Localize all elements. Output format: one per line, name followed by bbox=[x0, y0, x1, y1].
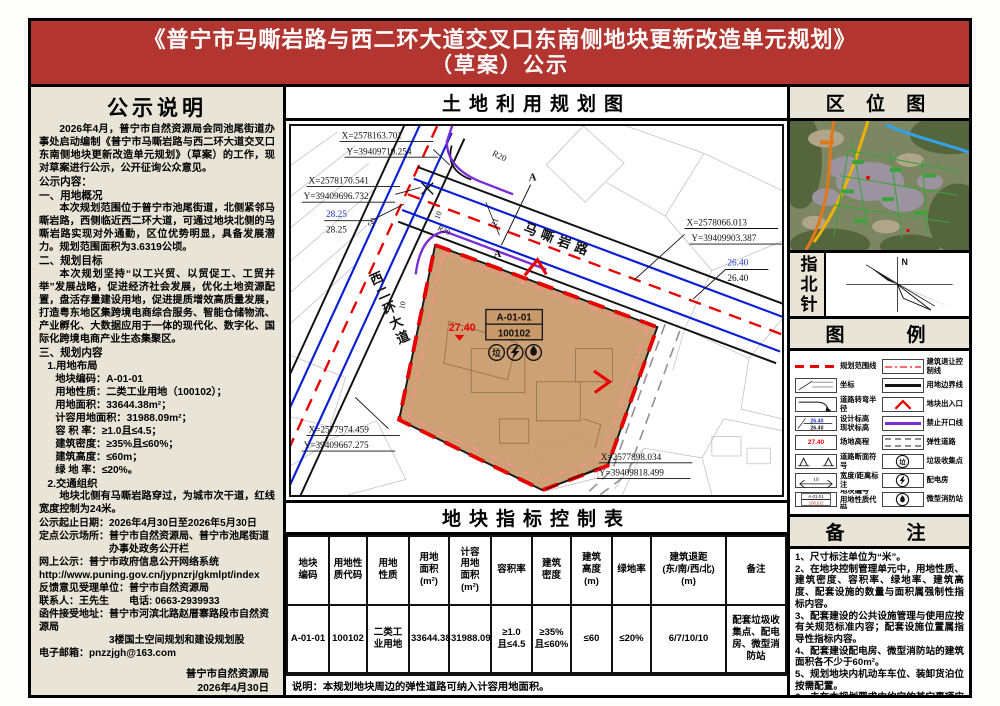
plot-entrance-icon bbox=[882, 397, 924, 412]
footer-line: 公示起止日期：2026年4月30日至2026年5月30日 bbox=[39, 517, 275, 530]
exist-elev: 26.40 bbox=[727, 274, 748, 284]
notice-s2-text: 本次规划坚持“以工兴贸、以贸促工、工贸并举”发展战略，促进经济社会发展，优化土地… bbox=[39, 269, 275, 347]
legend-item: 配电房 bbox=[882, 471, 967, 490]
legend-item: 垃 垃圾收集点 bbox=[882, 452, 967, 471]
svg-text:垃: 垃 bbox=[899, 457, 906, 466]
signature-date: 2026年4月30日 bbox=[39, 682, 269, 695]
table-row: A-01-01 100102 二类工 业用地 33644.38 31988.09… bbox=[287, 605, 786, 674]
notice-content-label: 公示内容： bbox=[39, 176, 275, 190]
remark-item: 2、在地块控制管理单元中，用地性质、建筑密度、容积率、绿地率、建筑高度、配套设施… bbox=[795, 564, 964, 611]
svg-text:10: 10 bbox=[813, 477, 819, 483]
remark-item: 4、配套建设配电房、微型消防站的建筑面积各不少于60m²。 bbox=[795, 646, 964, 669]
setback-label: 10 bbox=[433, 210, 444, 221]
remark-item: 6、未在本规划要求中约定的其它事项应遵从国家、省、市有关政策和标准。 bbox=[795, 692, 964, 695]
legend-item: 10 宽度/距离标注 bbox=[795, 471, 880, 490]
coord-label: Y=39409903.387 bbox=[691, 234, 756, 244]
col-header: 计容 用地 面积 (m²) bbox=[449, 536, 491, 605]
page-header: 《普宁市马嘶岩路与西二环大道交叉口东南侧地块更新改造单元规划》 （草案）公示 bbox=[31, 21, 969, 87]
col-header: 用地 面积 (m²) bbox=[409, 536, 449, 605]
notice-s3-title: 三、规划内容 bbox=[39, 347, 275, 361]
map-title: 土地利用规划图 bbox=[286, 87, 787, 121]
notice-title: 公示说明 bbox=[39, 92, 275, 122]
notice-s3-2-title: 2.交通组织 bbox=[39, 478, 275, 492]
coord-label: X=2577898.034 bbox=[601, 453, 662, 463]
coord-label: Y=39409818.499 bbox=[599, 468, 664, 478]
notice-sheet: 《普宁市马嘶岩路与西二环大道交叉口东南侧地块更新改造单元规划》 （草案）公示 公… bbox=[28, 18, 972, 698]
legend-item: 规划范围线 bbox=[795, 357, 880, 376]
notice-s2-title: 二、规划目标 bbox=[39, 255, 275, 269]
cell-height: ≤60 bbox=[571, 605, 612, 674]
svg-text:100102: 100102 bbox=[809, 501, 824, 506]
table-header-row: 地块 编码 用地性 质代码 用地 性质 用地 面积 (m²) 计容 用地 面积 … bbox=[287, 536, 786, 605]
legend-item: 用地边界线 bbox=[882, 376, 967, 395]
compass-section: 指北针 N bbox=[790, 253, 969, 319]
location-map-title: 区 位 图 bbox=[790, 87, 969, 121]
cell-area: 33644.38 bbox=[409, 605, 449, 674]
indicator-table: 地块 编码 用地性 质代码 用地 性质 用地 面积 (m²) 计容 用地 面积 … bbox=[286, 535, 787, 674]
coord-label: X=2577974.459 bbox=[309, 426, 370, 436]
col-header: 建筑退距 (东/南/西/北) (m) bbox=[651, 536, 726, 605]
col-header: 备注 bbox=[726, 536, 786, 605]
col-header: 用地性 质代码 bbox=[329, 536, 367, 605]
cell-density: ≥35% 且≤60% bbox=[532, 605, 571, 674]
radius-label: R20 bbox=[436, 223, 452, 237]
coord-label: Y=39409710.254 bbox=[347, 147, 412, 157]
coord-label: Y=39409696.732 bbox=[304, 192, 369, 202]
marker-dot bbox=[906, 229, 909, 232]
signature-org: 普宁市自然资源局 bbox=[39, 668, 269, 682]
notice-s3-1-title: 1.用地布局 bbox=[39, 360, 275, 374]
legend-item: 禁止开口线 bbox=[882, 414, 967, 433]
footer-url: http://www.puning.gov.cn/jypnzrj/gkmlpt/… bbox=[39, 569, 275, 582]
legend-title: 图 例 bbox=[790, 319, 969, 351]
planning-range-line-icon bbox=[795, 359, 837, 374]
trash-point-legend-icon: 垃 bbox=[882, 454, 924, 469]
signature-block: 普宁市自然资源局 2026年4月30日 bbox=[39, 668, 275, 695]
notice-footer: 公示起止日期：2026年4月30日至2026年5月30日 定点公示场所：普宁市自… bbox=[39, 517, 275, 695]
site-elevation-icon: 27.40 bbox=[795, 435, 837, 450]
map-area: A-01-01 100102 垃 27.40 bbox=[286, 121, 787, 500]
landuse-map-section: 土地利用规划图 bbox=[286, 87, 787, 503]
footer-line: 定点公示场所：普宁市自然资源局、普宁市池尾街道 办事处政务公开栏 bbox=[39, 530, 275, 556]
landuse-map-drawing: A-01-01 100102 垃 27.40 bbox=[291, 126, 782, 495]
indicator-table-section: 地块指标控制表 地块 编码 用地性 质代码 用地 性质 用地 面积 (m²) bbox=[286, 503, 787, 695]
legend-item: 26.40 26.40 设计标高 现状标高 bbox=[795, 414, 880, 433]
elevation-icon: 26.40 26.40 bbox=[795, 416, 837, 431]
cell-use-code: 100102 bbox=[329, 605, 367, 674]
cell-setback: 6/7/10/10 bbox=[651, 605, 726, 674]
power-room-legend-icon bbox=[882, 473, 924, 488]
svg-text:A-01-01: A-01-01 bbox=[808, 494, 824, 499]
remark-item: 5、规划地块内机动车车位、装卸货泊位按需配置。 bbox=[795, 669, 964, 692]
plot-line: 建筑密度：≥35%且≤60%； bbox=[39, 439, 275, 452]
legend-item: 道路断面符号 bbox=[795, 452, 880, 471]
setback-label: 10 bbox=[397, 300, 407, 310]
section-mark: A bbox=[529, 172, 537, 184]
cell-green: ≤20% bbox=[612, 605, 651, 674]
page-title-line2: （草案）公示 bbox=[431, 53, 569, 79]
trash-glyph: 垃 bbox=[492, 347, 501, 358]
plot-line: 计容用地面积：31988.09m²； bbox=[39, 413, 275, 426]
parcel-use-label: 100102 bbox=[498, 328, 531, 339]
cell-plot-code: A-01-01 bbox=[287, 605, 329, 674]
radius-label: R20 bbox=[491, 148, 509, 164]
page-title-line1: 《普宁市马嘶岩路与西二环大道交叉口东南侧地块更新改造单元规划》 bbox=[143, 26, 856, 54]
col-header: 建筑 密度 bbox=[532, 536, 571, 605]
legend: 规划范围线 建筑退让控制线 坐标 用地边界线 bbox=[790, 351, 969, 517]
coordinate-icon bbox=[795, 378, 837, 393]
plot-line: 用地面积：33644.38m²； bbox=[39, 400, 275, 413]
col-header: 用地 性质 bbox=[367, 536, 409, 605]
plot-line: 用地性质：二类工业用地（100102）； bbox=[39, 387, 275, 400]
north-label: N bbox=[901, 257, 907, 267]
notice-s3-2-text: 地块北侧有马嘶岩路穿过，为城市次干道，红线宽度控制为24米。 bbox=[39, 491, 275, 517]
site-marker bbox=[866, 176, 870, 180]
col-header: 绿地率 bbox=[612, 536, 651, 605]
design-elev: 28.25 bbox=[326, 210, 347, 220]
coord-label: X=2578170.541 bbox=[309, 177, 370, 187]
dimension-icon: 10 bbox=[795, 473, 837, 488]
col-header: 地块 编码 bbox=[287, 536, 329, 605]
remarks-title: 备 注 bbox=[790, 517, 969, 549]
footer-contact: 联系人：王先生 电话: 0663-2939933 bbox=[39, 595, 275, 608]
legend-item: 弹性道路 bbox=[882, 433, 967, 452]
compass-title: 指北针 bbox=[790, 253, 826, 316]
col-header: 建筑 高度 (m) bbox=[571, 536, 612, 605]
remark-item: 3、配套建设的公共设施管理与使用应按有关规范标准内容；配套设施位置属指导性指标内… bbox=[795, 611, 964, 646]
exist-elev: 28.25 bbox=[326, 225, 347, 235]
cell-far-area: 31988.09 bbox=[449, 605, 491, 674]
cell-far: ≥1.0 且≤4.5 bbox=[491, 605, 532, 674]
center-column: 土地利用规划图 bbox=[286, 87, 790, 695]
plot-code-icon: A-01-01100102 bbox=[795, 492, 837, 507]
cell-remark: 配套垃圾收集点、配电房、微型消防站 bbox=[726, 605, 786, 674]
land-boundary-line-icon bbox=[882, 378, 924, 393]
legend-item: 微型消防站 bbox=[882, 490, 967, 509]
col-header: 容积率 bbox=[491, 536, 532, 605]
coord-label: Y=39409667.275 bbox=[304, 441, 369, 451]
footer-line: 反馈意见受理单位：普宁市自然资源局 bbox=[39, 582, 275, 595]
legend-item: 道路转弯半径 bbox=[795, 395, 880, 414]
design-elev: 26.40 bbox=[727, 259, 748, 269]
table-note: 说明：本规划地块周边的弹性道路可纳入计容用地面积。 bbox=[286, 674, 787, 695]
location-map bbox=[790, 121, 969, 253]
footer-address: 函件接受地址：普宁市河滨北路赵厝寨路段市自然资源局 3楼国土空间规划和建设规划股 bbox=[39, 608, 275, 647]
legend-item: 27.40 场地高程 bbox=[795, 433, 880, 452]
plot-line: 绿 地 率：≤20%。 bbox=[39, 465, 275, 478]
road-section-icon bbox=[795, 454, 837, 469]
plot-line: 容 积 率：≥1.0且≤4.5； bbox=[39, 426, 275, 439]
no-opening-line-icon bbox=[882, 416, 924, 431]
section-mark: A bbox=[494, 248, 502, 260]
notice-s1-title: 一、用地概况 bbox=[39, 190, 275, 204]
notice-intro: 2026年4月，普宁市自然资源局会同池尾街道办事处启动编制《普宁市马嘶岩路与西二… bbox=[39, 124, 275, 176]
legend-item: 坐标 bbox=[795, 376, 880, 395]
parcel-code-label: A-01-01 bbox=[496, 313, 532, 324]
plot-line: 建筑高度：≤60m； bbox=[39, 452, 275, 465]
elastic-road-icon bbox=[882, 435, 924, 450]
plot-line: 地块编码：A-01-01 bbox=[39, 374, 275, 387]
satellite-image bbox=[790, 121, 969, 250]
notice-panel: 公示说明 2026年4月，普宁市自然资源局会同池尾街道办事处启动编制《普宁市马嘶… bbox=[31, 87, 286, 695]
coord-label: X=2578066.013 bbox=[687, 219, 748, 229]
legend-item: 地块出入口 bbox=[882, 395, 967, 414]
table-title: 地块指标控制表 bbox=[286, 503, 787, 535]
right-column: 区 位 图 bbox=[790, 87, 969, 695]
cell-use-type: 二类工 业用地 bbox=[367, 605, 409, 674]
svg-text:26.40: 26.40 bbox=[810, 426, 823, 431]
road-label-masiyan: 马嘶岩路 bbox=[522, 219, 595, 259]
remark-item: 1、尺寸标注单位为“米”。 bbox=[795, 552, 964, 564]
footer-email: 电子邮箱：pnzzjgh@163.com bbox=[39, 647, 275, 660]
setback-control-line-icon bbox=[882, 359, 924, 374]
turning-radius-icon bbox=[795, 397, 837, 412]
footer-line: 网上公示：普宁市政府信息公开网络系统 bbox=[39, 556, 275, 569]
coord-label: X=2578163.701 bbox=[342, 132, 403, 142]
fire-station-legend-icon bbox=[882, 492, 924, 507]
north-arrow-drawing: N bbox=[826, 253, 969, 316]
remarks: 1、尺寸标注单位为“米”。 2、在地块控制管理单元中，用地性质、建筑密度、容积率… bbox=[790, 549, 969, 695]
legend-item: A-01-01100102 地块编号 用地性质代码 bbox=[795, 490, 880, 509]
north-arrow: N bbox=[826, 253, 969, 316]
site-elevation-label: 27.40 bbox=[449, 322, 476, 334]
legend-item: 建筑退让控制线 bbox=[882, 357, 967, 376]
notice-s1-text: 本次规划范围位于普宁市池尾街道，北侧紧邻马嘶岩路，西侧临近西二环大道，可通过地块… bbox=[39, 203, 275, 255]
